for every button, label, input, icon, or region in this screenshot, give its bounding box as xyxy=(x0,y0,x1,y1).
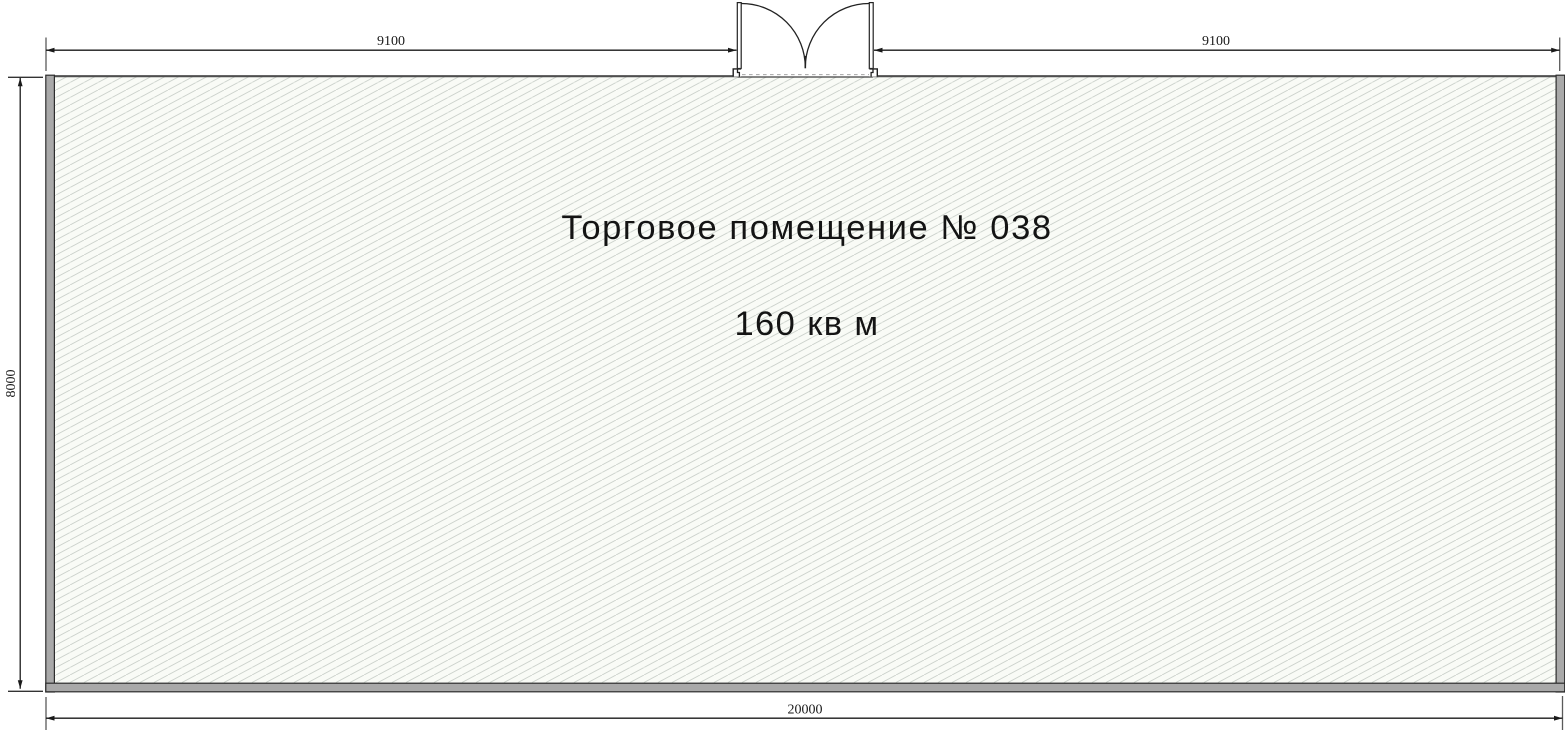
svg-text:9100: 9100 xyxy=(377,34,405,49)
svg-text:20000: 20000 xyxy=(788,703,823,718)
svg-text:9100: 9100 xyxy=(1202,34,1230,49)
svg-text:160 кв м: 160 кв м xyxy=(734,305,879,343)
svg-text:Торговое помещение № 038: Торговое помещение № 038 xyxy=(561,209,1052,247)
svg-text:8000: 8000 xyxy=(4,370,19,398)
